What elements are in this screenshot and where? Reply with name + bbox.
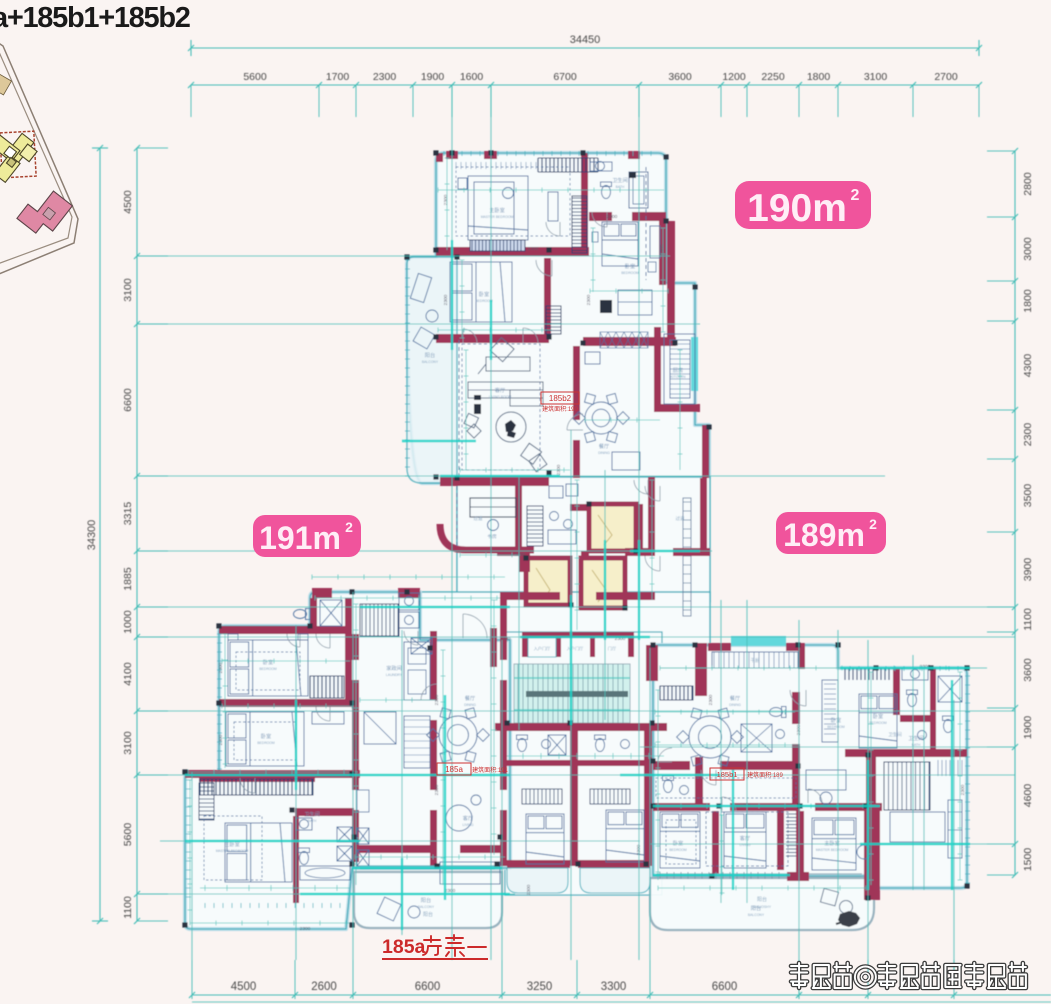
svg-text:建筑面积:191: 建筑面积:191	[472, 766, 508, 774]
svg-text:MASTER BEDROOM: MASTER BEDROOM	[481, 215, 514, 219]
svg-text:BEDROOM: BEDROOM	[827, 725, 845, 729]
svg-text:DINING: DINING	[464, 703, 476, 707]
svg-text:BEDROOM: BEDROOM	[669, 848, 687, 852]
svg-text:1100: 1100	[1022, 608, 1034, 631]
svg-text:卧室: 卧室	[831, 716, 841, 724]
svg-text:BALCONY: BALCONY	[748, 913, 765, 917]
svg-text:34450: 34450	[570, 34, 601, 46]
svg-text:4600: 4600	[1022, 784, 1034, 808]
svg-text:卫生间: 卫生间	[612, 176, 628, 184]
svg-text:2300: 2300	[586, 294, 592, 305]
svg-text:1900: 1900	[421, 71, 445, 83]
svg-text:191m: 191m	[259, 520, 341, 556]
svg-text:阳台: 阳台	[421, 896, 431, 904]
svg-text:3315: 3315	[122, 502, 134, 526]
svg-text:3100: 3100	[122, 731, 134, 755]
svg-text:建筑面积:189: 建筑面积:189	[747, 771, 783, 779]
svg-text:卫生间: 卫生间	[888, 731, 902, 738]
svg-text:卧室: 卧室	[625, 262, 635, 270]
svg-text:BEDROOM: BEDROOM	[259, 667, 277, 671]
svg-text:餐厅: 餐厅	[465, 694, 475, 702]
svg-text:2250: 2250	[761, 71, 785, 83]
svg-text:过道: 过道	[474, 515, 483, 522]
svg-text:1500: 1500	[1022, 848, 1034, 872]
svg-text:2600: 2600	[311, 981, 337, 993]
svg-text:2300: 2300	[373, 71, 397, 83]
svg-text:6600: 6600	[122, 388, 134, 412]
svg-text:入户门厅: 入户门厅	[534, 645, 551, 652]
svg-text:BALCONY: BALCONY	[418, 905, 435, 909]
svg-text:3500: 3500	[1022, 484, 1034, 508]
svg-text:2: 2	[869, 516, 877, 532]
svg-text:1800: 1800	[807, 71, 831, 83]
svg-text:2: 2	[851, 187, 860, 204]
svg-text:餐厅: 餐厅	[599, 442, 609, 450]
svg-text:2300: 2300	[443, 194, 449, 205]
svg-text:34300: 34300	[86, 520, 98, 551]
svg-text:3300: 3300	[601, 981, 627, 993]
svg-text:189m: 189m	[783, 517, 865, 553]
svg-text:厨房: 厨房	[673, 366, 683, 374]
svg-text:3000: 3000	[1022, 237, 1034, 261]
svg-text:1000: 1000	[122, 610, 134, 634]
svg-text:餐厅: 餐厅	[730, 694, 740, 702]
svg-text:5600: 5600	[243, 71, 267, 83]
svg-text:阳台: 阳台	[751, 904, 761, 912]
svg-text:BEDROOM: BEDROOM	[621, 271, 639, 275]
svg-text:客厅: 客厅	[495, 386, 505, 394]
svg-text:6600: 6600	[712, 981, 738, 993]
svg-text:1100: 1100	[122, 896, 134, 919]
svg-text:2300: 2300	[607, 214, 618, 220]
svg-text:1700: 1700	[326, 71, 350, 83]
svg-text:1800: 1800	[1022, 289, 1034, 313]
svg-text:3600: 3600	[668, 71, 692, 83]
svg-text:4100: 4100	[122, 662, 134, 686]
svg-text:阳台: 阳台	[757, 896, 767, 903]
svg-text:阳台: 阳台	[423, 911, 433, 918]
svg-text:阳台: 阳台	[425, 351, 435, 359]
svg-text:2: 2	[345, 519, 353, 535]
svg-text:卫生间: 卫生间	[304, 810, 320, 818]
svg-text:3600: 3600	[1022, 658, 1034, 682]
svg-text:2300: 2300	[526, 884, 532, 895]
svg-text:2300: 2300	[528, 246, 539, 252]
svg-text:客厅: 客厅	[463, 814, 473, 822]
svg-text:185b2: 185b2	[549, 394, 572, 403]
svg-text:190m: 190m	[747, 187, 847, 230]
svg-text:4500: 4500	[231, 981, 257, 993]
svg-text:BEDROOM: BEDROOM	[869, 721, 887, 725]
svg-text:LIVING: LIVING	[462, 823, 473, 827]
svg-text:185a: 185a	[445, 765, 463, 774]
svg-text:LIVING ROOM: LIVING ROOM	[489, 395, 512, 399]
svg-text:4500: 4500	[122, 190, 134, 214]
svg-text:3250: 3250	[527, 981, 553, 993]
svg-text:6600: 6600	[415, 981, 441, 993]
svg-text:185a: 185a	[382, 936, 426, 958]
svg-text:门厅: 门厅	[608, 645, 616, 652]
svg-text:1200: 1200	[722, 71, 746, 83]
svg-text:3900: 3900	[1022, 558, 1034, 582]
svg-text:185b1: 185b1	[717, 770, 738, 779]
svg-text:2300: 2300	[434, 784, 440, 795]
svg-text:2700: 2700	[934, 71, 958, 83]
svg-text:4300: 4300	[1022, 354, 1034, 378]
svg-text:2300: 2300	[300, 926, 311, 932]
svg-text:客厅: 客厅	[740, 834, 750, 842]
svg-text:入户门厅: 入户门厅	[567, 645, 584, 652]
svg-text:6700: 6700	[553, 71, 577, 83]
svg-text:BATH: BATH	[308, 819, 317, 823]
svg-text:BALCONY: BALCONY	[422, 360, 439, 364]
svg-text:LAUNDRY: LAUNDRY	[386, 673, 403, 677]
svg-text:2300: 2300	[708, 694, 714, 705]
svg-text:卧室: 卧室	[673, 839, 683, 847]
svg-text:卫生间: 卫生间	[908, 734, 924, 742]
svg-text:5600: 5600	[122, 823, 134, 847]
svg-text:DINING: DINING	[598, 451, 610, 455]
svg-text:2300: 2300	[443, 294, 449, 305]
svg-text:2300: 2300	[960, 784, 966, 795]
svg-text:2300: 2300	[1022, 423, 1034, 447]
svg-text:BEDROOM: BEDROOM	[257, 741, 275, 745]
svg-text:卧室: 卧室	[479, 290, 489, 298]
svg-text:1900: 1900	[1022, 716, 1034, 740]
svg-text:书房: 书房	[487, 533, 497, 540]
svg-text:卧室: 卧室	[873, 712, 883, 720]
svg-text:2300: 2300	[218, 662, 224, 673]
svg-text:2300: 2300	[218, 734, 224, 745]
svg-text:MASTER BEDROOM: MASTER BEDROOM	[816, 848, 849, 852]
svg-text:卧室: 卧室	[263, 658, 273, 666]
svg-text:a+185b1+185b2: a+185b1+185b2	[0, 2, 190, 34]
svg-text:3100: 3100	[864, 71, 888, 83]
svg-text:过道: 过道	[676, 515, 685, 522]
svg-text:MASTER BEDROOM: MASTER BEDROOM	[216, 849, 249, 853]
svg-text:1600: 1600	[460, 71, 484, 83]
svg-text:1885: 1885	[122, 567, 134, 591]
svg-text:卧室: 卧室	[261, 732, 271, 740]
svg-text:3100: 3100	[122, 278, 134, 302]
svg-text:家政间: 家政间	[386, 664, 402, 672]
svg-text:建筑面积:190: 建筑面积:190	[542, 405, 578, 413]
svg-text:DINING: DINING	[729, 703, 741, 707]
svg-text:2800: 2800	[1022, 172, 1034, 196]
